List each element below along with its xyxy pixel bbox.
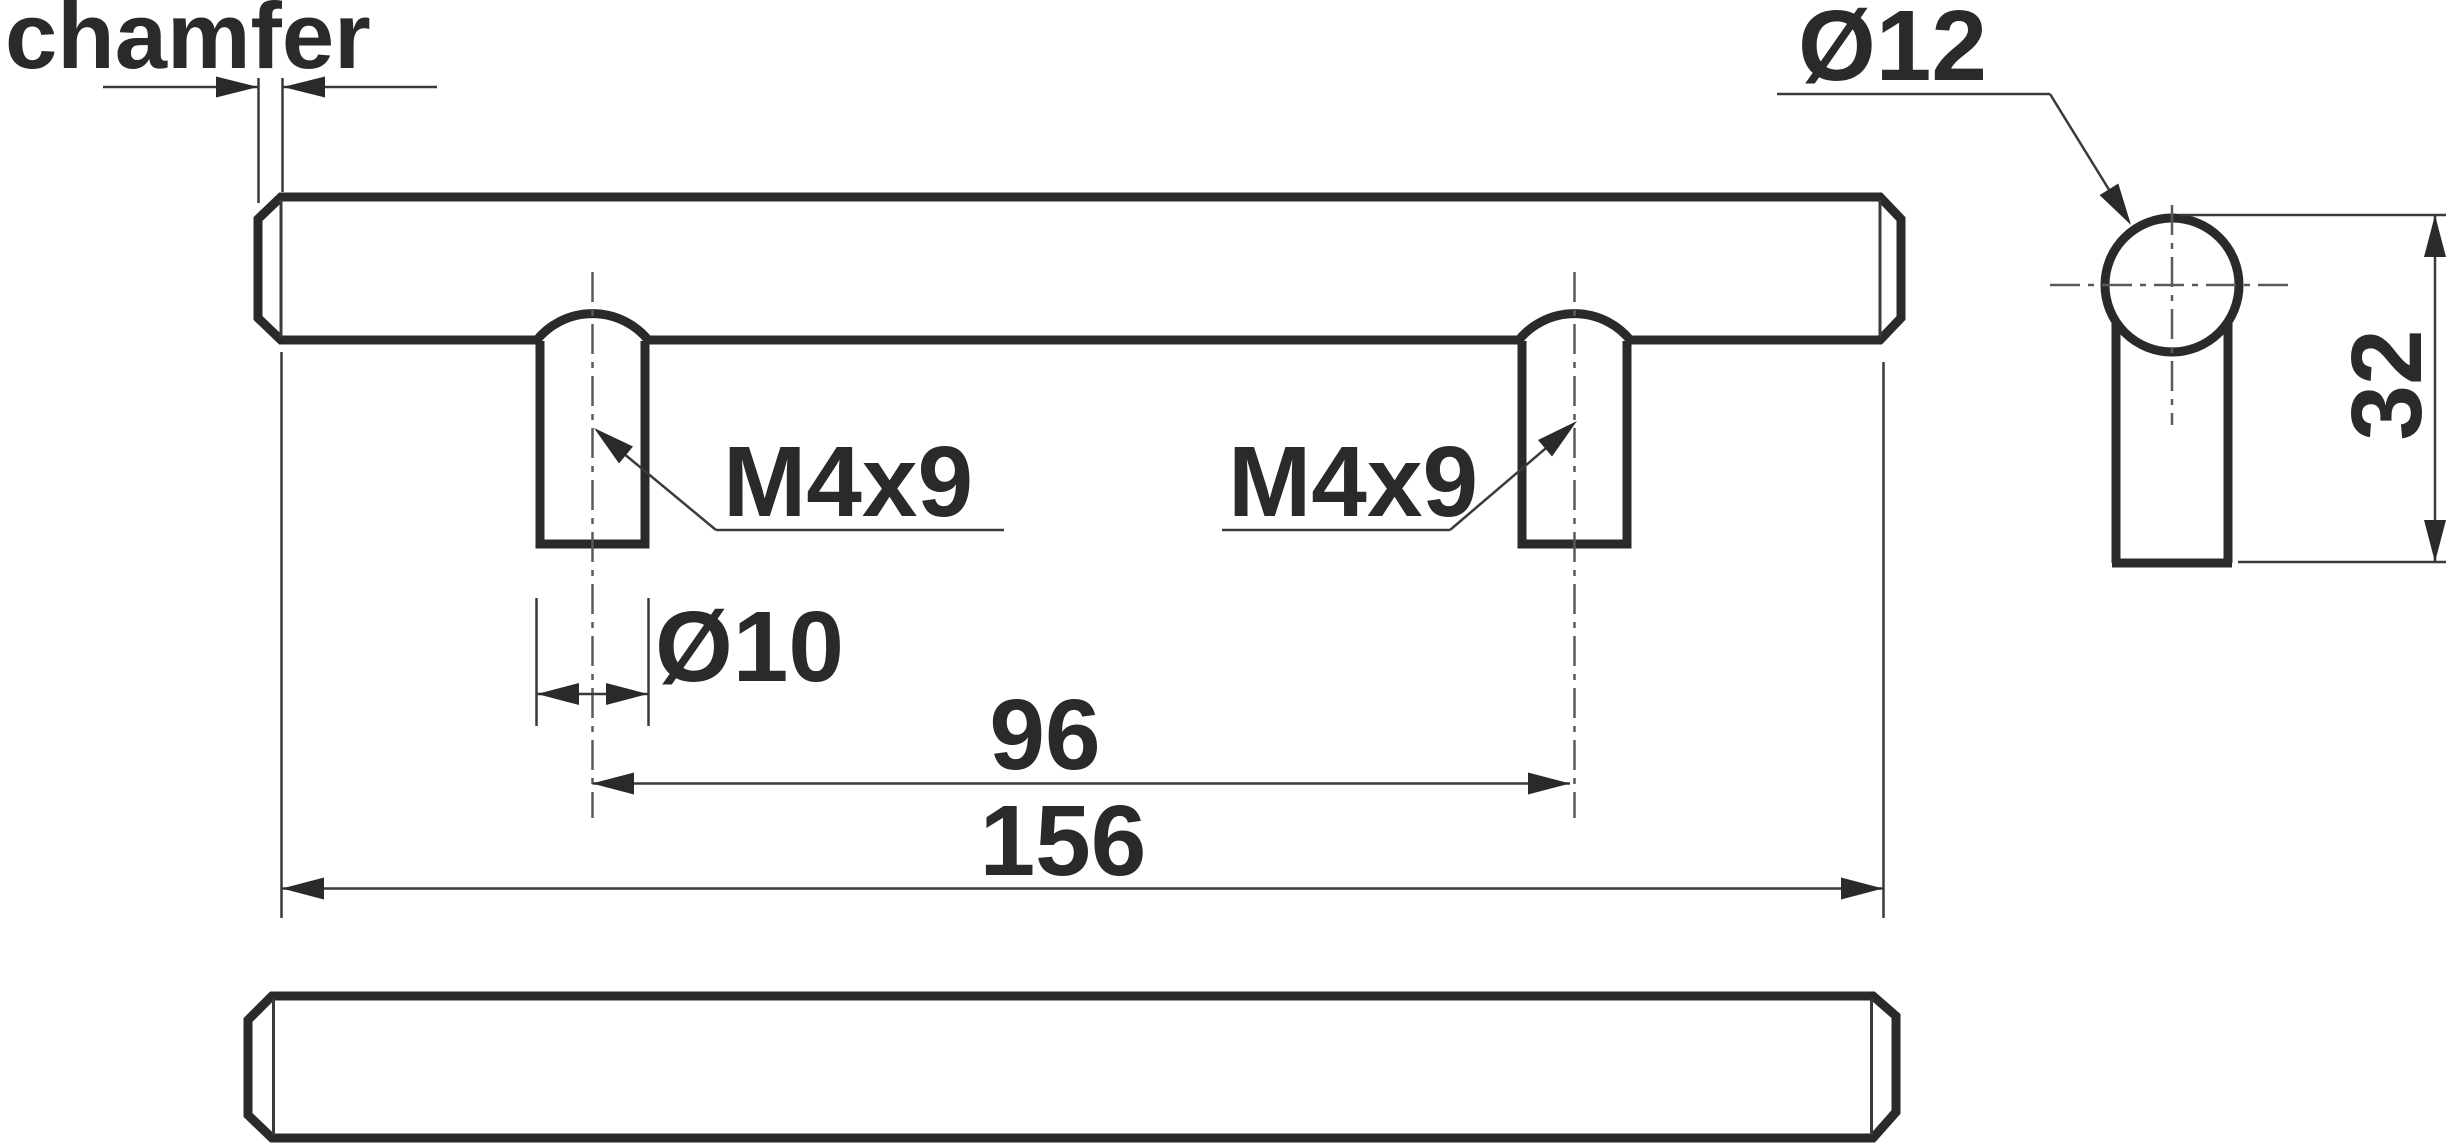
bottom-view (248, 996, 1896, 1138)
dim32-arrow-top (2424, 215, 2446, 257)
technical-drawing-canvas: chamfer M4x9 M4x9 Ø10 96 (0, 0, 2449, 1147)
dim96-label: 96 (989, 679, 1100, 791)
dia10-label: Ø10 (655, 591, 844, 703)
bar-outline (258, 197, 1901, 340)
bar-diameter-callout: Ø12 (1777, 0, 2131, 225)
dim156-arrow-left (282, 878, 324, 900)
chamfer-dimension: chamfer (5, 0, 437, 203)
dim32-label: 32 (2331, 329, 2443, 440)
chamfer-label: chamfer (5, 0, 371, 88)
drawing-page: chamfer M4x9 M4x9 Ø10 96 (0, 0, 2449, 1147)
thread-callout-left: M4x9 (594, 426, 1004, 538)
height-dimension: 32 (2180, 215, 2446, 562)
thread-left-label: M4x9 (723, 426, 973, 538)
dim96-arrow-right (1528, 773, 1570, 795)
dia12-arrow (2100, 184, 2131, 226)
dim32-arrow-bottom (2424, 520, 2446, 562)
bottom-bar-outline (248, 996, 1896, 1138)
dim156-label: 156 (980, 785, 1147, 897)
thread-right-label: M4x9 (1228, 426, 1478, 538)
side-view (2050, 205, 2295, 563)
dim96-arrow-left (592, 773, 634, 795)
post-diameter-dimension: Ø10 (536, 591, 844, 726)
overall-length-dimension: 156 (281, 352, 1884, 918)
dia10-arrow-left (537, 683, 579, 705)
dia12-label: Ø12 (1798, 0, 1987, 102)
dia10-arrow-right (606, 683, 648, 705)
thread-left-arrow (594, 428, 633, 464)
dim156-arrow-right (1841, 878, 1883, 900)
